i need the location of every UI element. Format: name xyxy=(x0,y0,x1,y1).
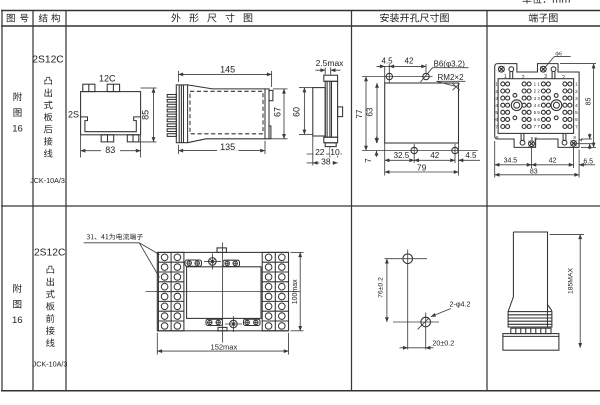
svg-text:8: 8 xyxy=(573,135,576,140)
svg-text:42: 42 xyxy=(430,151,439,160)
svg-text:7: 7 xyxy=(537,124,540,129)
svg-text:2S: 2S xyxy=(68,109,79,119)
svg-text:3: 3 xyxy=(575,96,578,101)
svg-text:6: 6 xyxy=(495,117,498,122)
svg-text:6: 6 xyxy=(537,117,540,122)
svg-text:4.5: 4.5 xyxy=(381,56,393,65)
svg-text:7: 7 xyxy=(364,158,373,163)
svg-text:34.5: 34.5 xyxy=(504,158,518,165)
svg-text:152max: 152max xyxy=(211,342,238,351)
svg-text:32.5: 32.5 xyxy=(394,151,410,160)
svg-text:7: 7 xyxy=(534,124,537,129)
svg-text:83: 83 xyxy=(105,145,115,155)
svg-text:1: 1 xyxy=(537,82,540,87)
svg-text:1: 1 xyxy=(534,82,537,87)
svg-text:2S12C: 2S12C xyxy=(34,247,66,258)
svg-text:2: 2 xyxy=(575,89,578,94)
svg-text:4: 4 xyxy=(495,103,498,108)
svg-text:12C: 12C xyxy=(99,74,116,84)
svg-text:3: 3 xyxy=(495,96,498,101)
svg-text:42: 42 xyxy=(549,158,557,165)
svg-text:2: 2 xyxy=(522,75,525,81)
svg-text:10: 10 xyxy=(330,147,340,157)
svg-text:60: 60 xyxy=(291,107,301,117)
svg-text:2.5max: 2.5max xyxy=(316,58,345,68)
svg-text:7: 7 xyxy=(495,124,498,129)
svg-text:67: 67 xyxy=(273,107,283,117)
svg-text:16: 16 xyxy=(12,315,23,326)
svg-text:85: 85 xyxy=(585,98,592,106)
svg-text:B6(φ3.2): B6(φ3.2) xyxy=(434,59,466,68)
svg-text:63: 63 xyxy=(365,107,374,116)
svg-text:4: 4 xyxy=(575,103,578,108)
svg-text:77: 77 xyxy=(355,109,364,118)
svg-text:16: 16 xyxy=(12,124,23,135)
svg-text:JCK-10A/3: JCK-10A/3 xyxy=(30,176,65,185)
svg-text:4.5: 4.5 xyxy=(465,151,477,160)
svg-text:3: 3 xyxy=(544,74,547,80)
svg-text:2: 2 xyxy=(562,75,565,81)
svg-text:4: 4 xyxy=(579,138,585,141)
svg-text:2-φ4.2: 2-φ4.2 xyxy=(450,300,471,309)
svg-text:1: 1 xyxy=(495,82,498,87)
svg-text:2S12C: 2S12C xyxy=(32,54,64,65)
svg-text:5: 5 xyxy=(495,110,498,115)
svg-text:6: 6 xyxy=(575,117,578,122)
svg-text:38: 38 xyxy=(321,156,331,166)
svg-text:6.5: 6.5 xyxy=(583,159,593,166)
svg-text:42: 42 xyxy=(405,56,414,65)
svg-text:8: 8 xyxy=(531,136,534,141)
svg-text:RM2×2: RM2×2 xyxy=(438,73,465,82)
svg-text:85: 85 xyxy=(141,110,151,120)
svg-text:3: 3 xyxy=(537,96,540,101)
svg-text:JCK-10A/3: JCK-10A/3 xyxy=(33,360,68,369)
svg-text:145: 145 xyxy=(220,65,235,75)
svg-text:1: 1 xyxy=(575,82,578,87)
svg-text:2: 2 xyxy=(537,89,540,94)
svg-text:4: 4 xyxy=(534,103,537,108)
svg-text:2: 2 xyxy=(495,89,498,94)
svg-text:5: 5 xyxy=(575,110,578,115)
svg-text:135: 135 xyxy=(220,142,235,152)
svg-text:7: 7 xyxy=(575,124,578,129)
svg-text:79: 79 xyxy=(417,162,427,172)
svg-text:2: 2 xyxy=(534,89,537,94)
svg-text:5: 5 xyxy=(537,110,540,115)
svg-text:1: 1 xyxy=(504,74,507,80)
svg-text:5: 5 xyxy=(534,110,537,115)
svg-text:100max: 100max xyxy=(292,279,299,304)
svg-text:3: 3 xyxy=(534,96,537,101)
svg-text:4: 4 xyxy=(537,103,540,108)
svg-text:185MAX: 185MAX xyxy=(568,268,575,295)
svg-text:83: 83 xyxy=(530,169,538,176)
svg-text:76±0.2: 76±0.2 xyxy=(377,277,384,298)
svg-text:20±0.2: 20±0.2 xyxy=(432,339,454,348)
svg-text:8: 8 xyxy=(534,136,537,141)
svg-text:6: 6 xyxy=(534,117,537,122)
